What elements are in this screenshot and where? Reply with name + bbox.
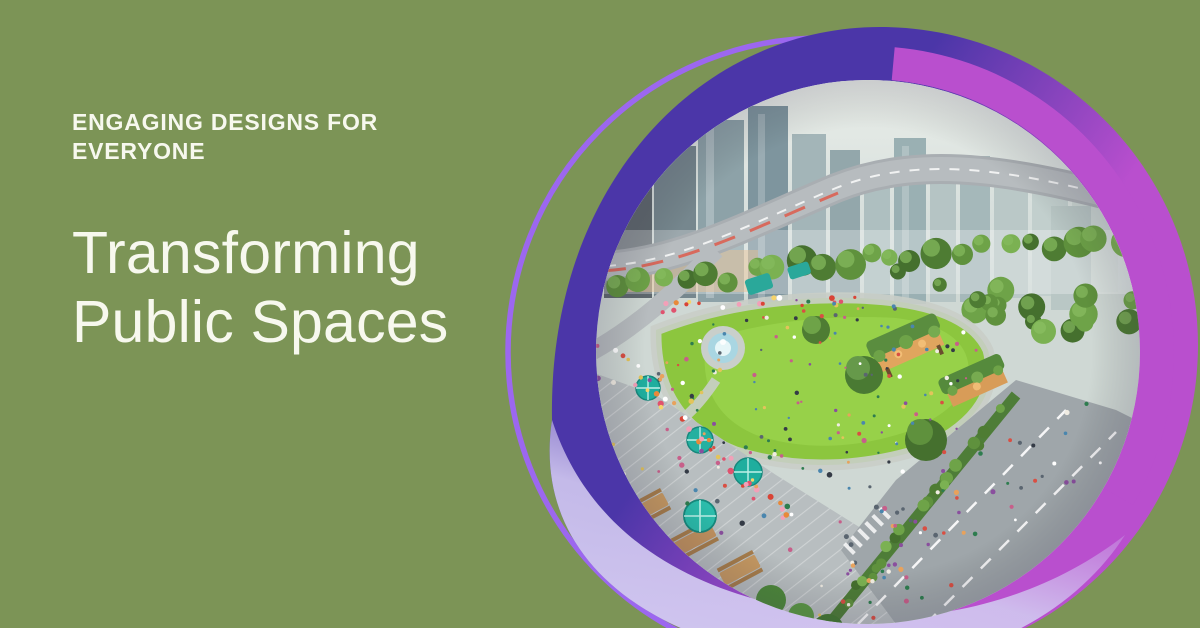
title-line-1: Transforming (72, 219, 542, 289)
title-line-2: Public Spaces (72, 288, 542, 358)
page-title: Transforming Public Spaces (72, 219, 542, 358)
copy-block: ENGAGING DESIGNS FOR EVERYONE Transformi… (72, 108, 542, 358)
eyebrow-line-2: EVERYONE (72, 137, 542, 166)
eyebrow-line-1: ENGAGING DESIGNS FOR (72, 108, 542, 137)
banner: ENGAGING DESIGNS FOR EVERYONE Transformi… (0, 0, 1200, 628)
eyebrow-text: ENGAGING DESIGNS FOR EVERYONE (72, 108, 542, 167)
